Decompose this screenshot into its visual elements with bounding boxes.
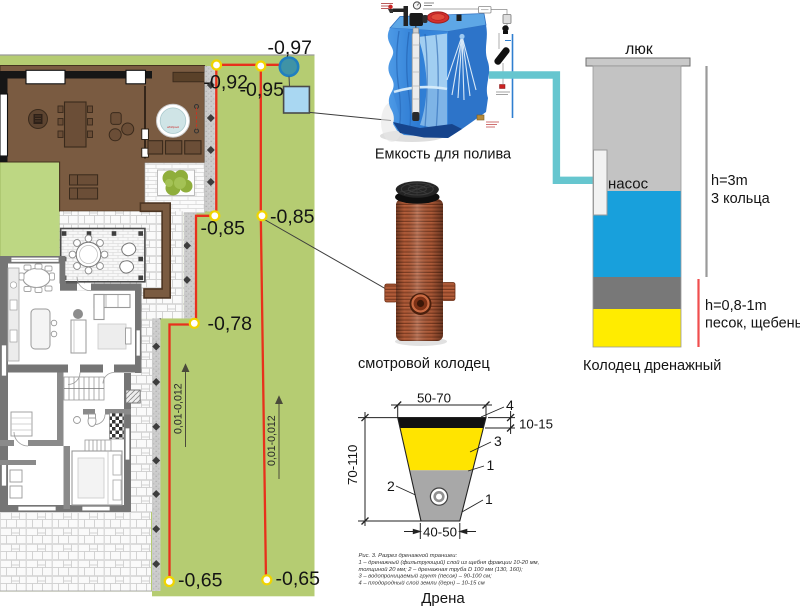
svg-text:h=0,8-1m: h=0,8-1m [705, 298, 767, 314]
svg-text:0,01-0,012: 0,01-0,012 [266, 415, 278, 466]
svg-text:0,01-0,012: 0,01-0,012 [173, 383, 185, 434]
svg-text:-0,65: -0,65 [178, 570, 223, 592]
svg-text:Колодец дренажный: Колодец дренажный [583, 358, 721, 374]
svg-text:-0,85: -0,85 [270, 206, 315, 228]
svg-text:4: 4 [506, 397, 514, 413]
svg-text:Рис. 3. Разрез дренажной транш: Рис. 3. Разрез дренажной траншеи: [359, 552, 458, 559]
svg-text:1: 1 [485, 491, 493, 507]
svg-text:40-50: 40-50 [423, 525, 457, 540]
svg-text:-0,78: -0,78 [208, 313, 252, 335]
svg-text:-0,95: -0,95 [240, 79, 285, 101]
svg-text:10-15: 10-15 [519, 417, 553, 432]
svg-text:Емкость для полива: Емкость для полива [375, 147, 512, 163]
svg-text:-0,85: -0,85 [201, 218, 246, 240]
svg-text:70-110: 70-110 [345, 445, 360, 485]
svg-text:3: 3 [494, 433, 502, 449]
svg-text:Дрена: Дрена [421, 590, 465, 607]
svg-text:-0,65: -0,65 [276, 568, 321, 590]
svg-text:50-70: 50-70 [417, 391, 451, 406]
svg-text:h=3m: h=3m [711, 173, 748, 189]
svg-text:3 кольца: 3 кольца [711, 191, 771, 207]
svg-text:3 – водопроницаемый грунт (пес: 3 – водопроницаемый грунт (песок) – 90-1… [359, 573, 493, 580]
svg-text:насос: насос [608, 176, 649, 193]
svg-text:whirlpool: whirlpool [167, 125, 179, 129]
svg-text:песок, щебень: песок, щебень [705, 316, 800, 332]
svg-text:люк: люк [625, 41, 653, 58]
svg-text:1: 1 [487, 457, 495, 473]
svg-text:2: 2 [387, 478, 395, 494]
svg-text:1 – дренажный (фильтрующий) сл: 1 – дренажный (фильтрующий) слой из щебн… [359, 559, 540, 566]
svg-text:-0,97: -0,97 [268, 37, 312, 59]
svg-text:4 – плодородный слой земли (де: 4 – плодородный слой земли (дерн) – 10-1… [359, 580, 485, 587]
svg-text:толщиной 20 мм; 2 – дренажная: толщиной 20 мм; 2 – дренажная труба D 10… [359, 566, 524, 573]
svg-text:смотровой колодец: смотровой колодец [358, 356, 490, 372]
